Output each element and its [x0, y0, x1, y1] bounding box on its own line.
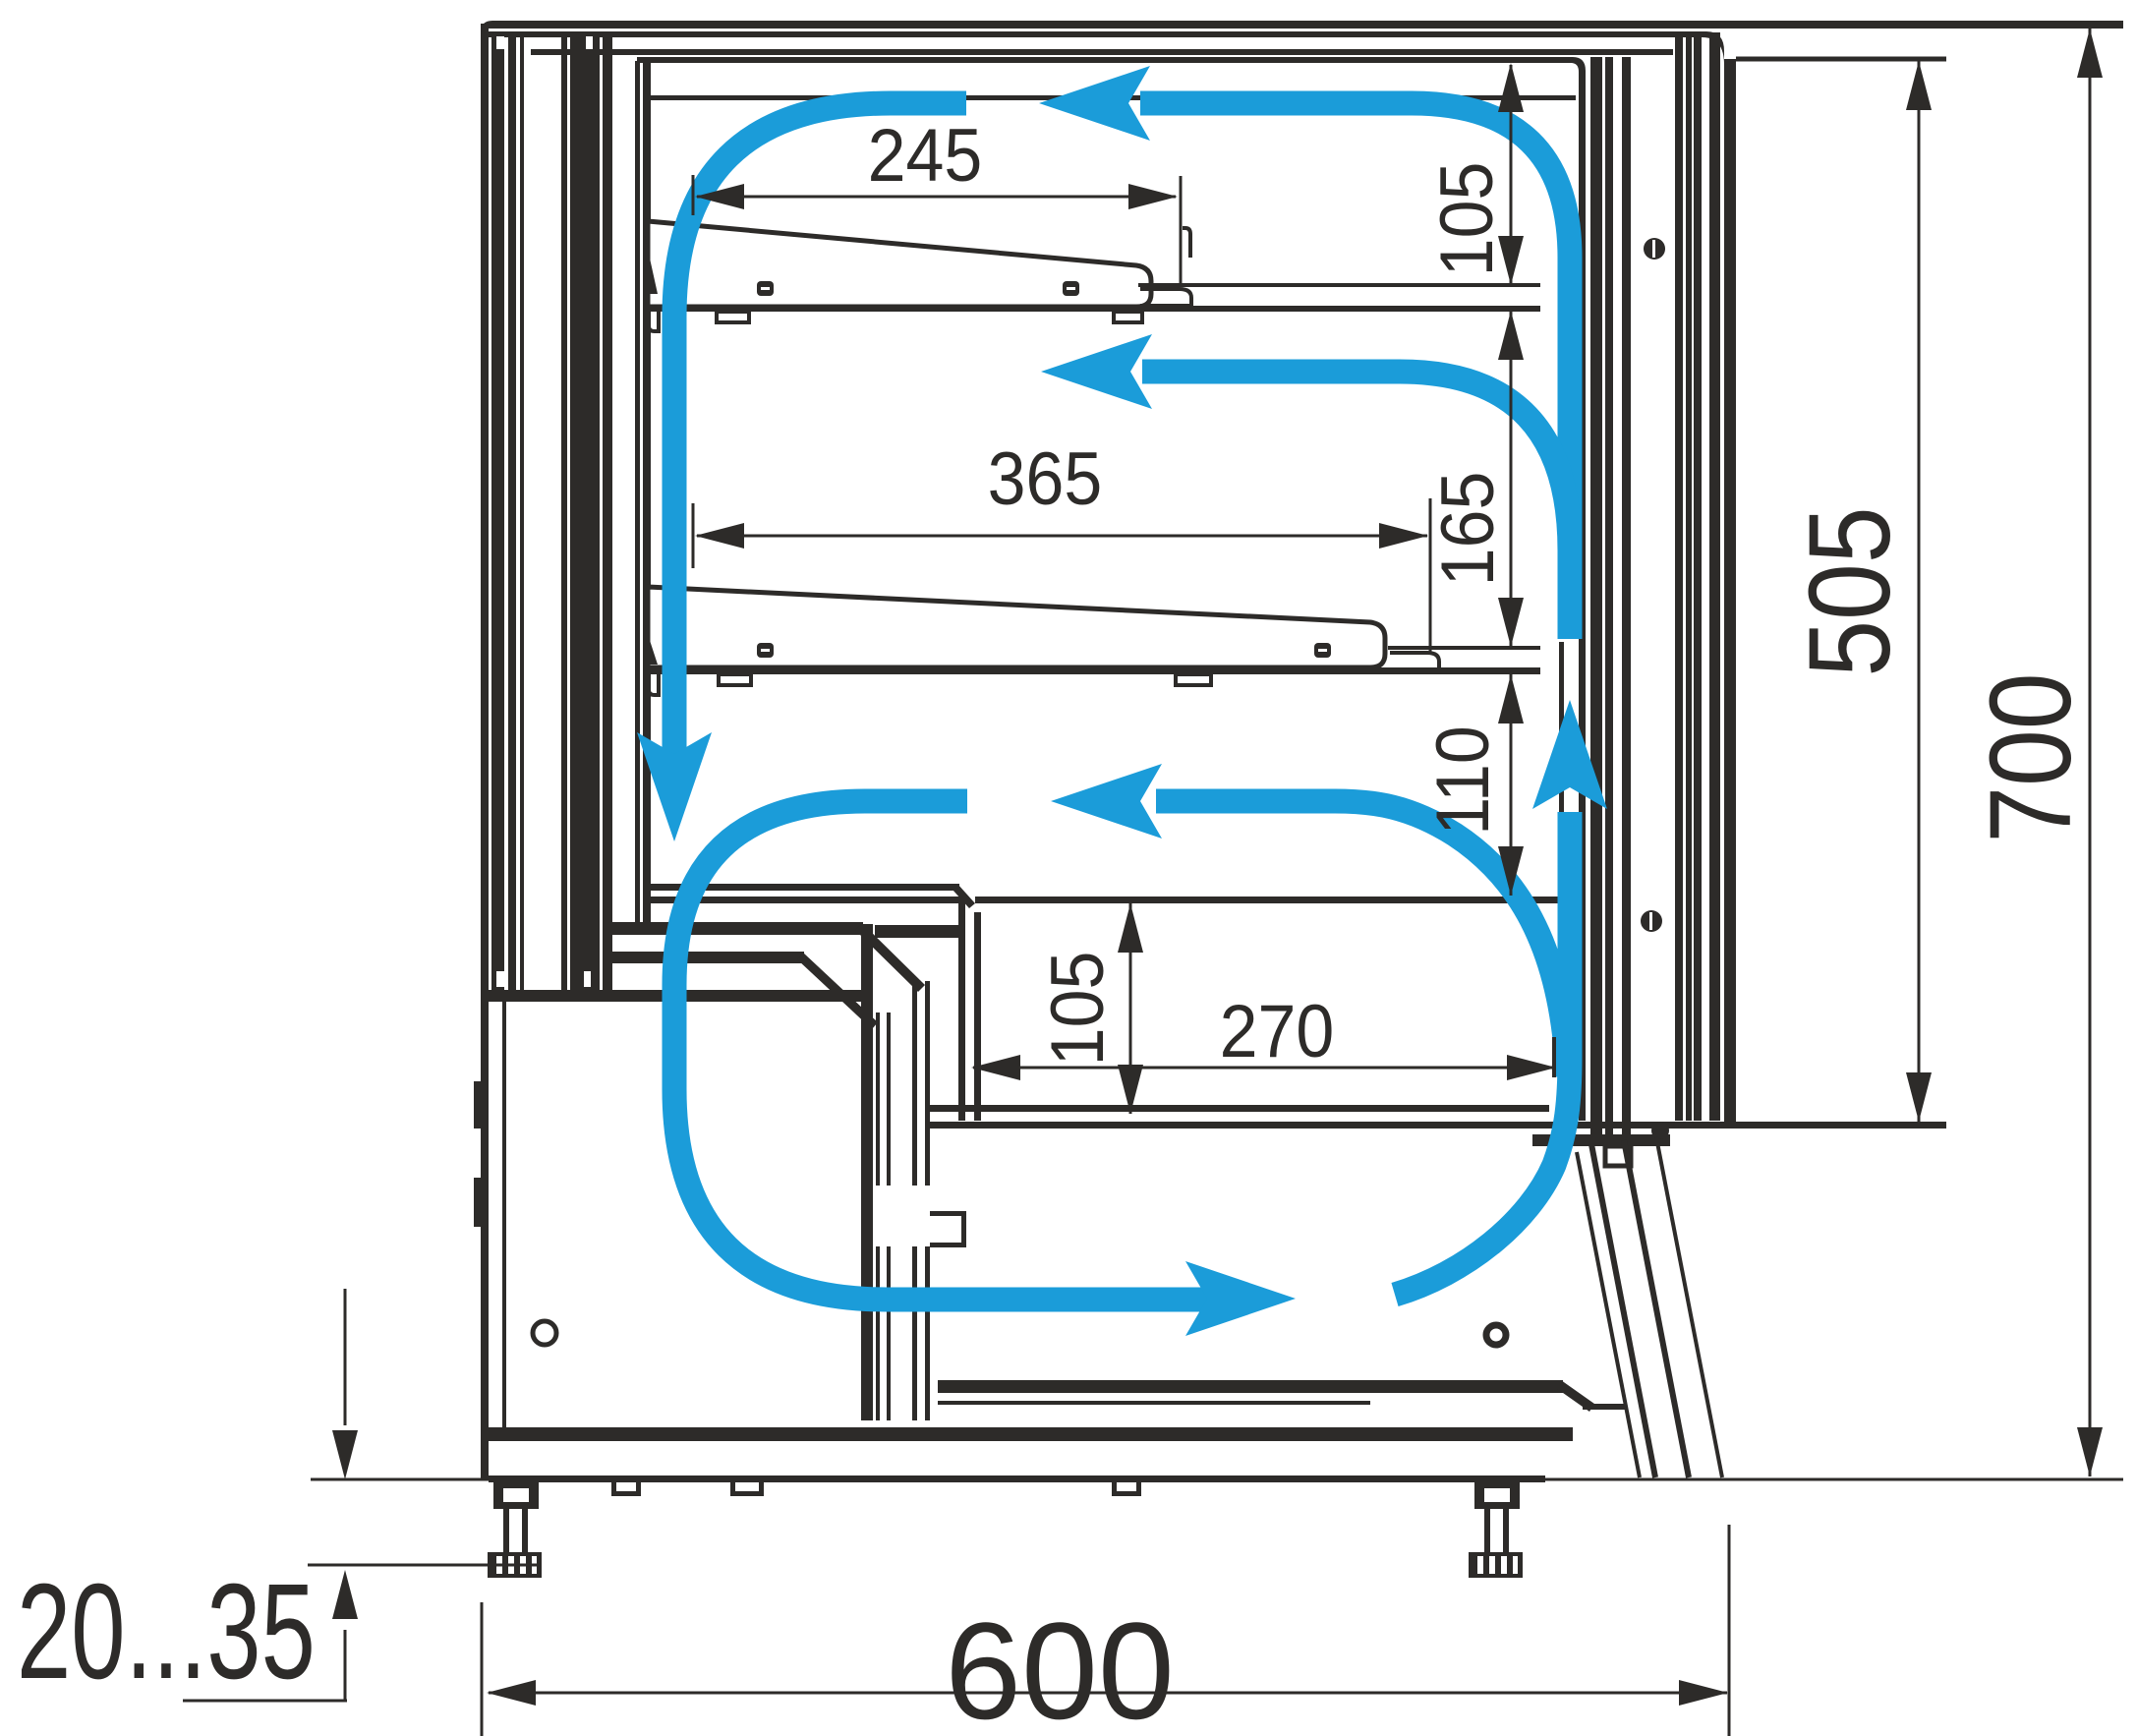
svg-text:600: 600: [945, 1593, 1175, 1736]
svg-text:270: 270: [1220, 990, 1335, 1072]
svg-text:505: 505: [1784, 506, 1915, 676]
svg-text:165: 165: [1426, 472, 1509, 587]
svg-text:365: 365: [988, 437, 1103, 520]
svg-text:105: 105: [1036, 952, 1119, 1067]
svg-text:105: 105: [1425, 162, 1508, 277]
svg-text:700: 700: [1965, 672, 2096, 842]
svg-text:245: 245: [868, 114, 983, 197]
svg-text:20...35: 20...35: [17, 1556, 316, 1707]
svg-text:110: 110: [1421, 725, 1504, 835]
